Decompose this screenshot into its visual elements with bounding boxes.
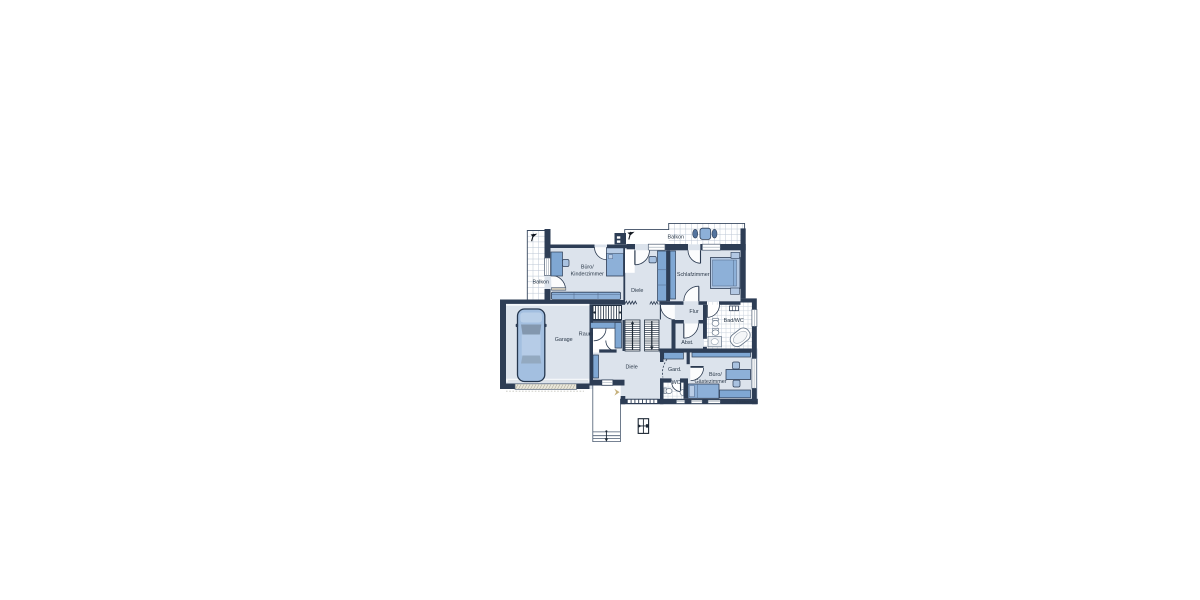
svg-text:Raum: Raum: [579, 332, 594, 338]
svg-text:Büro/: Büro/: [709, 372, 722, 378]
svg-text:Schlafzimmer: Schlafzimmer: [677, 272, 710, 278]
svg-text:Bad/WC: Bad/WC: [724, 318, 744, 324]
svg-text:Diele: Diele: [631, 288, 643, 294]
svg-text:/\ weberhaus: /\ weberhaus: [735, 400, 758, 404]
svg-text:Kinderzimmer: Kinderzimmer: [571, 271, 604, 277]
svg-text:Balkon: Balkon: [533, 280, 549, 286]
svg-text:Balkon: Balkon: [668, 235, 684, 241]
svg-text:Abst.: Abst.: [681, 340, 693, 346]
svg-text:WC: WC: [672, 380, 681, 386]
svg-text:Gästezimmer: Gästezimmer: [694, 379, 726, 385]
svg-text:Garage: Garage: [555, 337, 573, 343]
svg-text:Flur: Flur: [689, 309, 698, 315]
svg-text:Diele: Diele: [625, 364, 637, 370]
svg-text:Büro/: Büro/: [581, 265, 594, 271]
svg-text:Gard.: Gard.: [668, 367, 681, 373]
